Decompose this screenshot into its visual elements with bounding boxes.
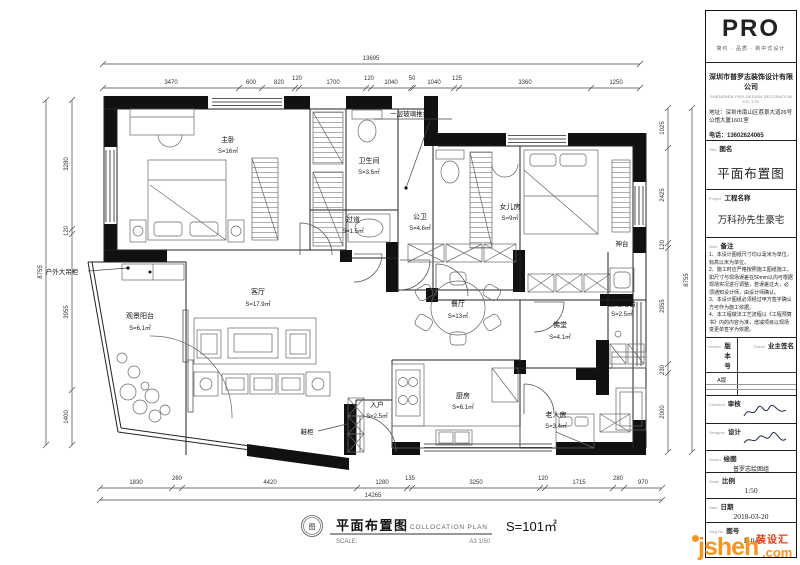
company-slogan: 简约 · 品质 · 新中式设计 bbox=[706, 45, 796, 52]
svg-text:过道: 过道 bbox=[346, 215, 360, 224]
svg-text:佛堂: 佛堂 bbox=[553, 320, 567, 329]
project-name: 万科孙先生豪宅 bbox=[706, 212, 796, 226]
watermark-logo: jsheh 装设汇 .com bbox=[688, 531, 800, 565]
living-room-set bbox=[194, 318, 330, 396]
svg-text:280: 280 bbox=[613, 476, 624, 482]
company-name: 深圳市普罗志装饰设计有限公司 bbox=[709, 72, 793, 92]
svg-text:神台: 神台 bbox=[616, 239, 629, 248]
drawn-label-en: Drawn bbox=[709, 457, 721, 462]
title-block: PRO 简约 · 品质 · 新中式设计 深圳市普罗志装饰设计有限公司 SHENZ… bbox=[705, 10, 797, 558]
svg-text:1715: 1715 bbox=[572, 480, 586, 486]
svg-text:S=9㎡: S=9㎡ bbox=[502, 214, 519, 222]
svg-text:13695: 13695 bbox=[363, 56, 380, 62]
drawing-title-section: Title 图名 平面布置图 bbox=[706, 141, 796, 191]
dining-set bbox=[414, 272, 503, 345]
company-logo: PRO bbox=[706, 17, 796, 41]
svg-text:1400: 1400 bbox=[64, 410, 70, 424]
note-item: 2、施工时应严格按照施工图纸施工，如尺寸与现场误差在50mm以内可根据现场实况进… bbox=[709, 267, 793, 297]
company-phone: 电话：13602624065 bbox=[709, 130, 793, 139]
version-label-en: Version bbox=[708, 344, 721, 349]
svg-text:120: 120 bbox=[538, 476, 549, 482]
svg-text:8755: 8755 bbox=[38, 265, 44, 279]
windows bbox=[106, 99, 643, 452]
svg-text:公卫: 公卫 bbox=[413, 213, 427, 221]
version-empty-cell bbox=[706, 385, 738, 389]
svg-text:125: 125 bbox=[452, 76, 463, 82]
svg-text:S=16㎡: S=16㎡ bbox=[218, 147, 238, 155]
owner-signature-label: 业主签名 bbox=[768, 340, 794, 350]
svg-text:1250: 1250 bbox=[609, 80, 623, 86]
company-info-section: 深圳市普罗志装饰设计有限公司 SHENZHEN PRO-DESIGN DECOR… bbox=[706, 63, 796, 141]
svg-text:主卧: 主卧 bbox=[221, 135, 235, 144]
owner-label-en: Owner bbox=[753, 344, 765, 349]
company-address: 地址：深圳市南山区荔景大道26号公馆大厦1601室 bbox=[709, 110, 793, 126]
floor-plan-drawing: 13695 3470 600 820 120 1700 120 1040 50 … bbox=[0, 0, 705, 565]
svg-text:观景阳台: 观景阳台 bbox=[126, 311, 154, 320]
svg-text:一层玻璃推拉门: 一层玻璃推拉门 bbox=[390, 109, 436, 118]
note-item: 4、本工程做法工艺流程以《工程预算书》内的内容为准，增减项目以现场变更单签字为依… bbox=[709, 312, 793, 335]
svg-text:2955: 2955 bbox=[660, 299, 666, 313]
drawn-section: Drawn 绘图 普罗志绘图组 bbox=[706, 451, 796, 473]
svg-text:260: 260 bbox=[172, 476, 183, 482]
date-label-en: Date bbox=[709, 505, 717, 510]
svg-text:1280: 1280 bbox=[375, 480, 389, 486]
svg-text:鞋柜: 鞋柜 bbox=[301, 427, 315, 436]
svg-text:S=6.1㎡: S=6.1㎡ bbox=[129, 324, 151, 332]
owner-signature-cell[interactable] bbox=[738, 385, 796, 389]
svg-text:120: 120 bbox=[364, 76, 375, 82]
drawn-label: 绘图 bbox=[724, 453, 737, 463]
svg-text:S=4.6㎡: S=4.6㎡ bbox=[409, 224, 431, 232]
owner-signature-cell[interactable] bbox=[738, 390, 796, 394]
checked-signature bbox=[742, 404, 788, 420]
drawing-title: 平面布置图 bbox=[706, 163, 796, 182]
svg-text:S=3.6㎡: S=3.6㎡ bbox=[358, 168, 380, 176]
svg-text:600: 600 bbox=[246, 80, 257, 86]
caption-area: S=101㎡ bbox=[506, 519, 557, 534]
svg-text:2425: 2425 bbox=[660, 188, 666, 202]
caption-scale-value: A3 1/50 bbox=[469, 539, 490, 545]
room-labels: 主卧 S=16㎡ 卫生间 S=3.6㎡ 过道 S=1.5㎡ 公卫 S=4.6㎡ … bbox=[126, 135, 636, 430]
svg-text:8755: 8755 bbox=[684, 273, 690, 287]
owner-signature-cell[interactable] bbox=[738, 373, 796, 384]
logo-section: PRO 简约 · 品质 · 新中式设计 bbox=[706, 11, 796, 63]
date-label: 日期 bbox=[720, 501, 733, 511]
scale-value: 1:50 bbox=[706, 486, 796, 495]
scale-label: 比例 bbox=[722, 475, 735, 485]
svg-text:820: 820 bbox=[274, 80, 285, 86]
svg-text:S=2.5㎡: S=2.5㎡ bbox=[611, 310, 633, 318]
note-item: 3、本设计图纸必须经过甲方签字确认方可作为施工依据。 bbox=[709, 297, 793, 312]
svg-text:S=1.5㎡: S=1.5㎡ bbox=[342, 227, 364, 235]
caption-subtitle: COLLOCATION PLAN bbox=[410, 524, 488, 531]
checked-label: 审核 bbox=[728, 398, 741, 408]
company-name-en: SHENZHEN PRO-DESIGN DECORATION CO.,LTD bbox=[709, 94, 793, 104]
daughter-bed bbox=[470, 150, 630, 248]
project-label: 工程名称 bbox=[724, 192, 750, 202]
scale-label-en: Scale bbox=[709, 479, 719, 484]
master-bed bbox=[130, 109, 278, 242]
version-label: 版本号 bbox=[724, 340, 735, 370]
date-section: Date 日期 2018-03-20 bbox=[706, 499, 796, 523]
watermark-cn-text: 装设汇 bbox=[756, 531, 789, 546]
view-balcony-plants bbox=[117, 264, 232, 422]
svg-text:S=2.5㎡: S=2.5㎡ bbox=[366, 412, 388, 420]
svg-text:客厅: 客厅 bbox=[251, 287, 265, 296]
version-value: A版 bbox=[706, 373, 738, 384]
title-label: 图名 bbox=[719, 143, 732, 153]
svg-text:230: 230 bbox=[660, 364, 666, 375]
note-label-en: Note bbox=[709, 244, 717, 249]
project-section: Project 工程名称 万科孙先生豪宅 bbox=[706, 190, 796, 238]
svg-text:女儿房: 女儿房 bbox=[500, 202, 521, 211]
svg-text:1700: 1700 bbox=[326, 80, 340, 86]
svg-text:卫生间: 卫生间 bbox=[359, 156, 380, 165]
svg-text:餐厅: 餐厅 bbox=[451, 299, 465, 308]
designer-signature bbox=[742, 432, 788, 448]
svg-text:S=4.1㎡: S=4.1㎡ bbox=[549, 333, 571, 341]
svg-text:4420: 4420 bbox=[263, 480, 277, 486]
svg-text:老人房: 老人房 bbox=[546, 410, 567, 419]
svg-text:1830: 1830 bbox=[129, 480, 143, 486]
furniture bbox=[117, 109, 646, 452]
watermark-tld: .com bbox=[762, 545, 792, 560]
svg-text:120: 120 bbox=[660, 239, 666, 250]
checked-label-en: Checked bbox=[709, 402, 725, 407]
svg-text:14265: 14265 bbox=[365, 493, 382, 499]
svg-text:120: 120 bbox=[64, 225, 70, 236]
project-label-en: Project bbox=[709, 196, 721, 201]
designer-label: 设计 bbox=[728, 426, 741, 436]
note-item: 1、本设计图纸尺寸均以毫米为单位，标高以米为单位。 bbox=[709, 252, 793, 267]
watermark-brand: jsheh bbox=[698, 533, 758, 562]
bathroom-fixtures bbox=[348, 110, 464, 242]
checked-section: Checked 审核 bbox=[706, 396, 796, 424]
plan-caption: 图 平面布置图 COLLOCATION PLAN SCALE: A3 1/50 … bbox=[302, 516, 557, 546]
title-label-en: Title bbox=[709, 147, 716, 152]
svg-text:970: 970 bbox=[638, 480, 649, 486]
svg-text:1025: 1025 bbox=[660, 121, 666, 135]
designer-label-en: Designer bbox=[709, 430, 725, 435]
svg-text:S=17.9㎡: S=17.9㎡ bbox=[245, 300, 270, 308]
svg-text:3360: 3360 bbox=[518, 80, 532, 86]
svg-text:3250: 3250 bbox=[469, 480, 483, 486]
svg-text:S=3.4㎡: S=3.4㎡ bbox=[545, 422, 567, 430]
dimension-lines bbox=[43, 61, 695, 503]
svg-text:1040: 1040 bbox=[384, 80, 398, 86]
caption-title: 平面布置图 bbox=[336, 518, 409, 533]
svg-text:S=6.1㎡: S=6.1㎡ bbox=[452, 403, 474, 411]
svg-text:3955: 3955 bbox=[64, 305, 70, 319]
version-empty-cell bbox=[706, 390, 738, 394]
svg-text:入户: 入户 bbox=[370, 400, 384, 409]
drawn-by: 普罗志绘图组 bbox=[706, 464, 796, 473]
svg-text:3470: 3470 bbox=[164, 80, 178, 86]
caption-scale-label: SCALE: bbox=[336, 539, 358, 545]
svg-text:1040: 1040 bbox=[427, 80, 441, 86]
scale-section: Scale 比例 1:50 bbox=[706, 473, 796, 499]
svg-text:生活阳台: 生活阳台 bbox=[608, 299, 636, 308]
svg-text:2000: 2000 bbox=[660, 405, 666, 419]
svg-text:3280: 3280 bbox=[64, 157, 70, 171]
caption-badge: 图 bbox=[309, 523, 316, 531]
svg-text:户外大吊柜: 户外大吊柜 bbox=[46, 267, 79, 276]
svg-text:120: 120 bbox=[292, 76, 303, 82]
notes-section: Note 备注 1、本设计图纸尺寸均以毫米为单位，标高以米为单位。 2、施工时应… bbox=[706, 238, 796, 338]
note-label: 备注 bbox=[720, 240, 733, 250]
svg-text:50: 50 bbox=[409, 76, 416, 82]
version-section: Version 版本号 Owner 业主签名 A版 bbox=[706, 338, 796, 396]
corridor-closets bbox=[313, 112, 343, 246]
svg-text:厨房: 厨房 bbox=[456, 391, 470, 400]
svg-text:135: 135 bbox=[405, 476, 416, 482]
date-value: 2018-03-20 bbox=[706, 512, 796, 521]
svg-text:S=13㎡: S=13㎡ bbox=[448, 312, 468, 320]
designer-section: Designer 设计 bbox=[706, 424, 796, 452]
